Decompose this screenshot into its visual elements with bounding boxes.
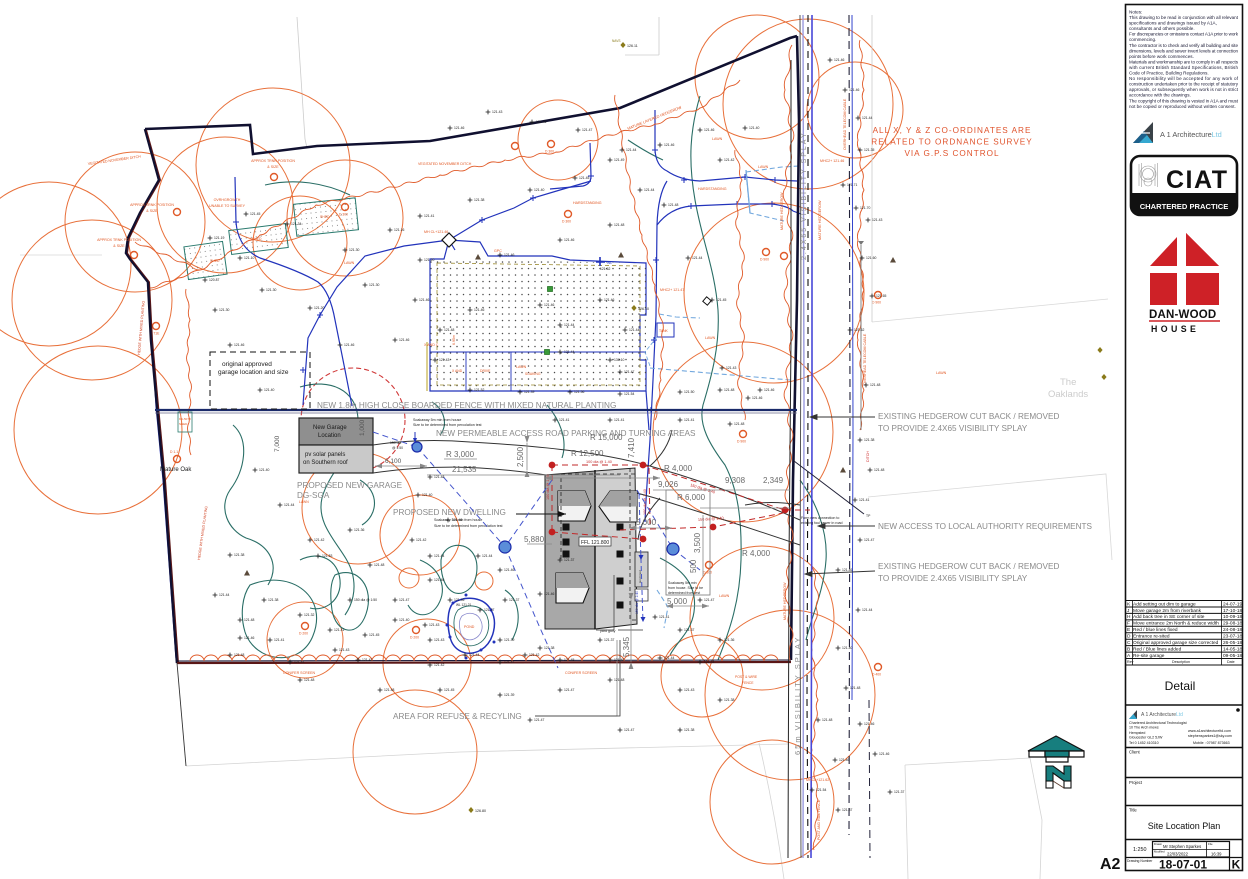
svg-text:Drawn: Drawn (1154, 842, 1163, 846)
svg-text:09-05-18: 09-05-18 (1223, 653, 1243, 659)
svg-text:Move entrance 2m North & reduc: Move entrance 2m North & reduce width (1133, 621, 1219, 627)
svg-text:www.a1architectureltd.com: www.a1architectureltd.com (1188, 729, 1231, 733)
svg-text:File: File (1208, 842, 1213, 846)
svg-text:H: H (1127, 614, 1131, 620)
svg-text:Code of Practice, Building Reg: Code of Practice, Building Regulations. (1129, 71, 1209, 76)
svg-text:24-07-19: 24-07-19 (1223, 601, 1243, 607)
svg-text:17-10-18: 17-10-18 (1223, 608, 1243, 614)
svg-text:Drawing Number: Drawing Number (1127, 859, 1153, 863)
svg-text:24-08-18: 24-08-18 (1223, 627, 1243, 633)
svg-text:Detail: Detail (1165, 679, 1196, 693)
svg-text:CIAT: CIAT (1166, 166, 1228, 194)
svg-text:29-08-18: 29-08-18 (1223, 621, 1243, 627)
svg-text:F: F (1127, 621, 1130, 627)
svg-text:1:250: 1:250 (1133, 847, 1147, 853)
svg-text:Mr Stephen Sparkes: Mr Stephen Sparkes (1163, 844, 1201, 849)
svg-text:Entrance re-sited: Entrance re-sited (1133, 634, 1170, 640)
svg-text:Original approved garage size: Original approved garage size corrected (1133, 640, 1219, 646)
svg-text:Client: Client (1129, 750, 1141, 755)
svg-text:Date: Date (1227, 660, 1235, 664)
svg-text:Materials and workmanship are: Materials and workmanship are to comply … (1129, 59, 1239, 64)
svg-text:DAN-WOOD: DAN-WOOD (1149, 309, 1216, 321)
svg-text:18-07-01: 18-07-01 (1159, 858, 1207, 872)
svg-text:Ltd: Ltd (1212, 130, 1222, 139)
svg-text:E: E (1127, 627, 1130, 633)
svg-text:HOUSE: HOUSE (1151, 324, 1199, 334)
svg-text:approvals, or subsequently whe: approvals, or subsequently when work is … (1129, 87, 1239, 92)
svg-text:Chartered Architectural Techno: Chartered Architectural Technologist (1129, 721, 1187, 725)
svg-text:stephensparkes1@sky.com: stephensparkes1@sky.com (1188, 734, 1232, 738)
svg-text:A 1 Architecture: A 1 Architecture (1160, 130, 1212, 139)
svg-text:K: K (1232, 858, 1241, 872)
svg-text:A 1 Architecture: A 1 Architecture (1141, 712, 1176, 718)
svg-text:specifications and drawings is: specifications and drawings issued by A1… (1129, 21, 1217, 26)
svg-text:The contractor is to check and: The contractor is to check and verify al… (1129, 43, 1238, 48)
svg-text:Project: Project (1129, 780, 1143, 785)
svg-text:23-07-18: 23-07-18 (1223, 634, 1243, 640)
svg-text:22/03/2022: 22/03/2022 (1167, 852, 1189, 857)
svg-text:Gloucester GL2 5JW: Gloucester GL2 5JW (1129, 736, 1163, 740)
svg-text:Move garage 2m from riverbank: Move garage 2m from riverbank (1133, 608, 1202, 614)
svg-text:with current British Standard: with current British Standard Specificat… (1129, 65, 1238, 70)
svg-text:10-09-18: 10-09-18 (1223, 614, 1243, 620)
svg-text:10 The Arch mews: 10 The Arch mews (1129, 726, 1159, 730)
svg-text:Tel 0 1452 410310: Tel 0 1452 410310 (1129, 741, 1159, 745)
svg-text:Red / Blue lines added: Red / Blue lines added (1133, 647, 1182, 653)
svg-text:Title: Title (1129, 808, 1137, 813)
svg-text:Description: Description (1172, 660, 1190, 664)
svg-text:Add setting out dim to garage: Add setting out dim to garage (1133, 601, 1196, 607)
svg-text:This drawing to be read in con: This drawing to be read in conjunction w… (1129, 15, 1239, 20)
svg-text:Hempsted: Hempsted (1129, 731, 1145, 735)
svg-text:26-05-18: 26-05-18 (1223, 640, 1243, 646)
svg-text:The copyright of this drawing: The copyright of this drawing is vested … (1129, 98, 1239, 103)
svg-text:dimensions, levels and sewer i: dimensions, levels and sewer invert leve… (1129, 48, 1238, 53)
svg-text:Ltd: Ltd (1176, 712, 1183, 718)
svg-text:Re-site garage: Re-site garage (1133, 653, 1165, 659)
svg-text:Add back tree in SE corner of: Add back tree in SE corner of site (1133, 614, 1205, 620)
svg-text:accordance with the drawings.: accordance with the drawings. (1129, 93, 1191, 98)
svg-text:points before work commences.: points before work commences. (1129, 54, 1194, 59)
svg-text:No responsibility will be acce: No responsibility will be accepted for a… (1129, 76, 1239, 81)
svg-text:not be copied or reproduced wi: not be copied or reproduced without writ… (1129, 104, 1236, 109)
svg-text:construction undertaken prior: construction undertaken prior to the rec… (1129, 82, 1239, 87)
svg-text:B: B (1127, 647, 1130, 653)
svg-text:For discrepancies or omissions: For discrepancies or omissions contact A… (1129, 32, 1239, 37)
svg-text:commencing.: commencing. (1129, 37, 1156, 42)
svg-text:C: C (1127, 640, 1131, 646)
svg-text:Site Location Plan: Site Location Plan (1148, 821, 1221, 831)
svg-text:Modified: Modified (1154, 850, 1165, 854)
svg-text:D: D (1127, 634, 1131, 640)
svg-text:consultants and others possibl: consultants and others possible. (1129, 26, 1195, 31)
svg-text:Red / blue lines fixed: Red / blue lines fixed (1133, 627, 1178, 633)
svg-text:Notes:: Notes: (1129, 10, 1142, 15)
svg-text:16:39: 16:39 (1211, 852, 1222, 857)
svg-text:14-05-18: 14-05-18 (1223, 647, 1243, 653)
svg-text:Mobile : 07987 873663: Mobile : 07987 873663 (1193, 741, 1230, 745)
svg-text:CHARTERED PRACTICE: CHARTERED PRACTICE (1140, 202, 1229, 211)
